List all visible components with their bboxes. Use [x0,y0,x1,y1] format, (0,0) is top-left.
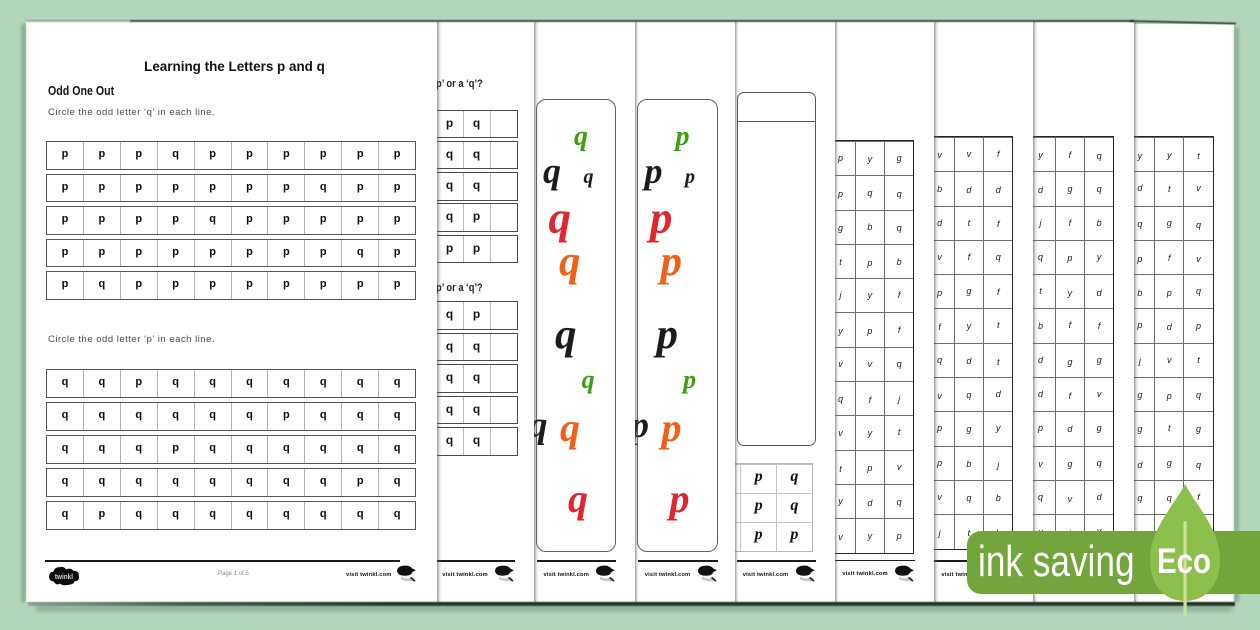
svg-text:twinkl: twinkl [55,574,73,581]
